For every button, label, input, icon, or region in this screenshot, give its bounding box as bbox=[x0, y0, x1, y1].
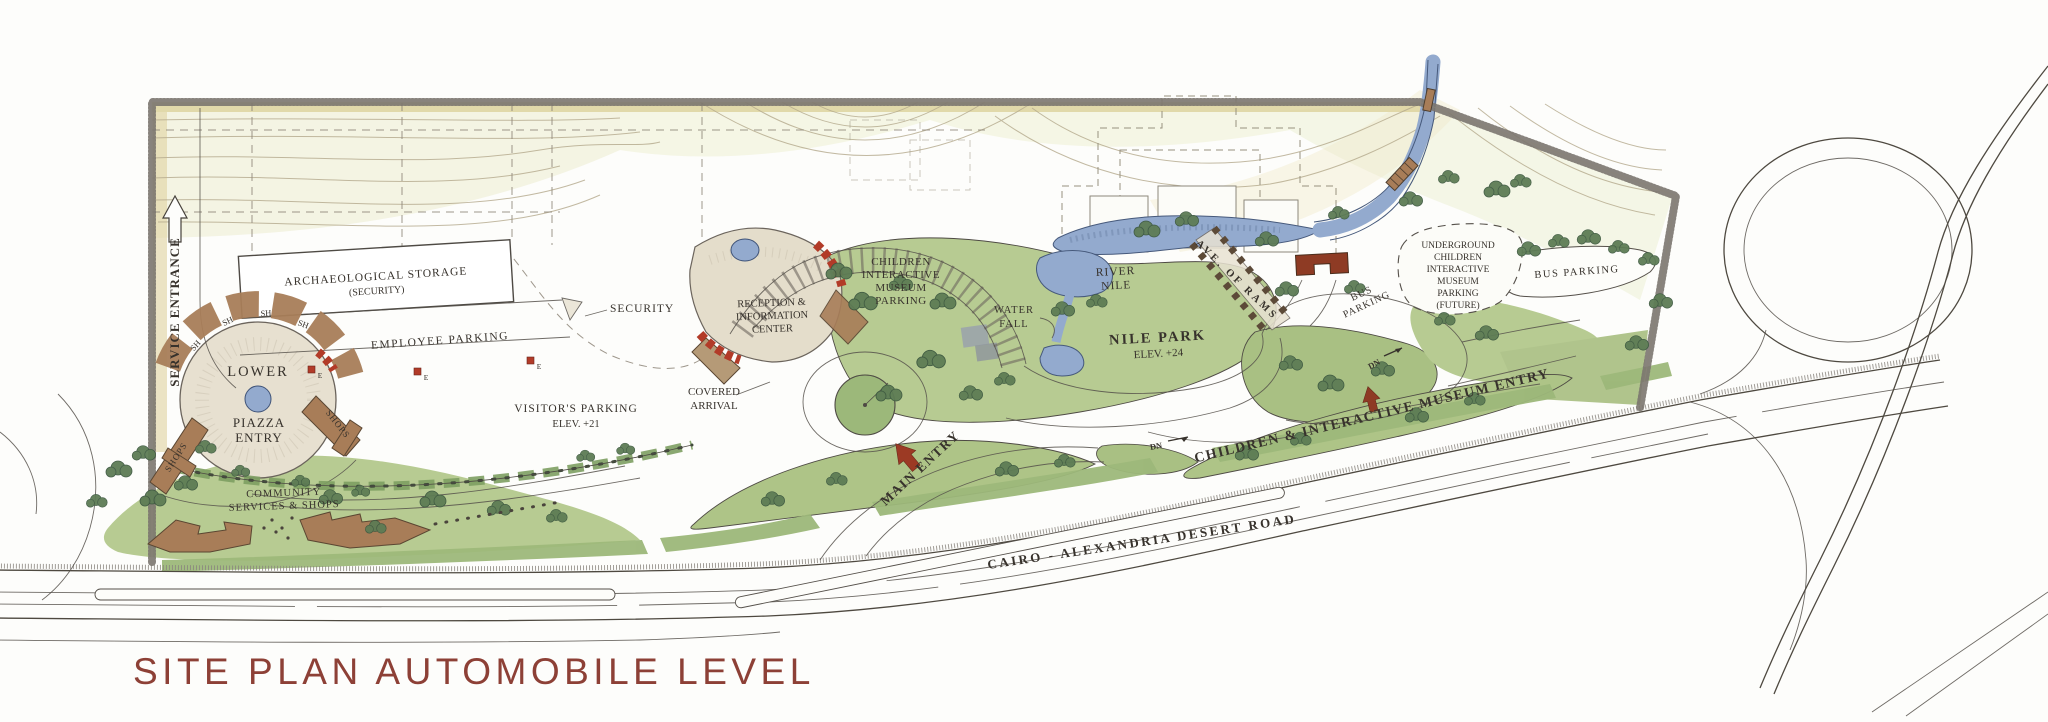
label-fall: FALL bbox=[999, 319, 1028, 330]
plan-title: SITE PLAN AUTOMOBILE LEVEL bbox=[133, 651, 815, 692]
label-covered: COVERED bbox=[688, 386, 740, 398]
piazza-fountain bbox=[245, 386, 271, 412]
road-median-island bbox=[95, 589, 615, 600]
entry-mound bbox=[835, 375, 895, 435]
label-underground-6: (FUTURE) bbox=[1436, 300, 1479, 311]
label-entry: ENTRY bbox=[235, 430, 283, 445]
label-reception-3: CENTER bbox=[752, 323, 793, 335]
label-water: WATER bbox=[994, 305, 1034, 316]
label-lower: LOWER bbox=[227, 364, 289, 380]
label-underground-4: MUSEUM bbox=[1437, 277, 1479, 287]
label-river: RIVER bbox=[1096, 265, 1136, 279]
label-children-parking-4: PARKING bbox=[875, 295, 926, 307]
label-entrance-e: E bbox=[318, 371, 323, 380]
label-arrival: ARRIVAL bbox=[690, 400, 738, 412]
label-security: SECURITY bbox=[610, 303, 674, 315]
label-piazza: PIAZZA bbox=[233, 415, 285, 430]
label-entrance-e: E bbox=[537, 362, 542, 371]
label-underground-1: UNDERGROUND bbox=[1421, 241, 1495, 251]
label-sh: SH bbox=[260, 308, 272, 319]
label-visitors-parking: VISITOR'S PARKING bbox=[514, 403, 638, 415]
label-underground-5: PARKING bbox=[1437, 289, 1478, 299]
label-underground-3: INTERACTIVE bbox=[1427, 265, 1490, 275]
reception-pool bbox=[731, 239, 759, 261]
label-service-entrance: SERVICE ENTRANCE bbox=[167, 237, 182, 387]
label-children-parking-2: INTERACTIVE bbox=[862, 269, 940, 281]
label-nile: NILE bbox=[1101, 279, 1132, 293]
label-visitors-parking-elev: ELEV. +21 bbox=[552, 419, 599, 430]
label-underground-2: CHILDREN bbox=[1434, 253, 1482, 263]
label-children-parking-3: MUSEUM bbox=[875, 282, 926, 294]
site-plan-drawing: SERVICE ENTRANCE ARCHAEOLOGICAL STORAGE … bbox=[0, 0, 2048, 722]
label-children-parking-1: CHILDREN bbox=[871, 256, 931, 268]
label-entrance-e: E bbox=[424, 373, 429, 382]
site-plan-page: SERVICE ENTRANCE ARCHAEOLOGICAL STORAGE … bbox=[0, 0, 2048, 722]
